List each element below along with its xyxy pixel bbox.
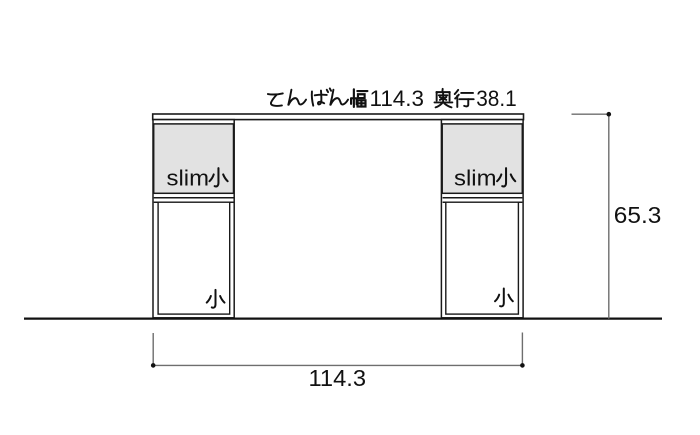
- svg-text:114.3: 114.3: [370, 86, 425, 111]
- svg-text:65.3: 65.3: [614, 202, 662, 228]
- svg-text:38.1: 38.1: [476, 86, 517, 111]
- svg-text:slim: slim: [454, 165, 497, 190]
- svg-text:114.3: 114.3: [309, 365, 367, 391]
- svg-text:slim: slim: [167, 165, 210, 190]
